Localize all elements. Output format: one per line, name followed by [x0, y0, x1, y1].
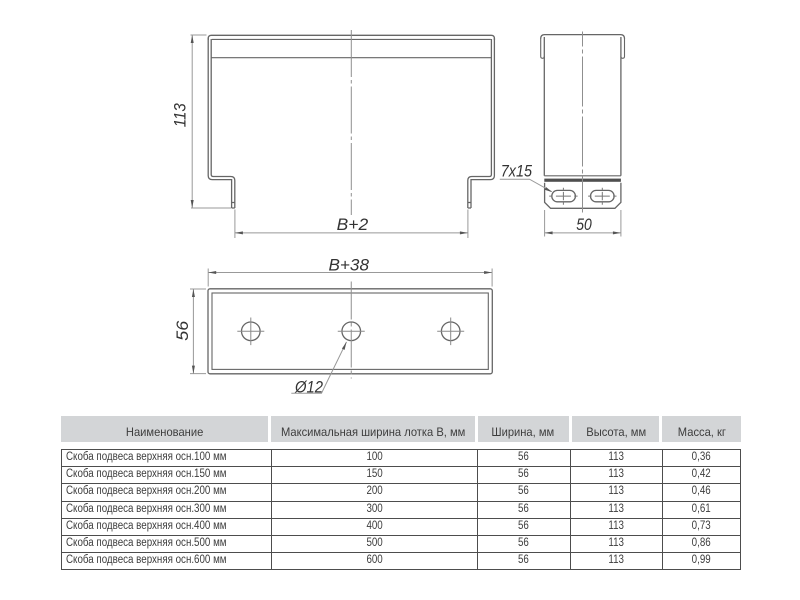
svg-text:Ø12: Ø12 — [294, 378, 323, 397]
svg-text:B+38: B+38 — [329, 255, 370, 274]
svg-text:50: 50 — [576, 215, 592, 234]
svg-text:113: 113 — [171, 103, 190, 127]
svg-text:B+2: B+2 — [337, 215, 369, 234]
svg-text:7x15: 7x15 — [501, 161, 533, 180]
svg-text:56: 56 — [173, 320, 192, 341]
